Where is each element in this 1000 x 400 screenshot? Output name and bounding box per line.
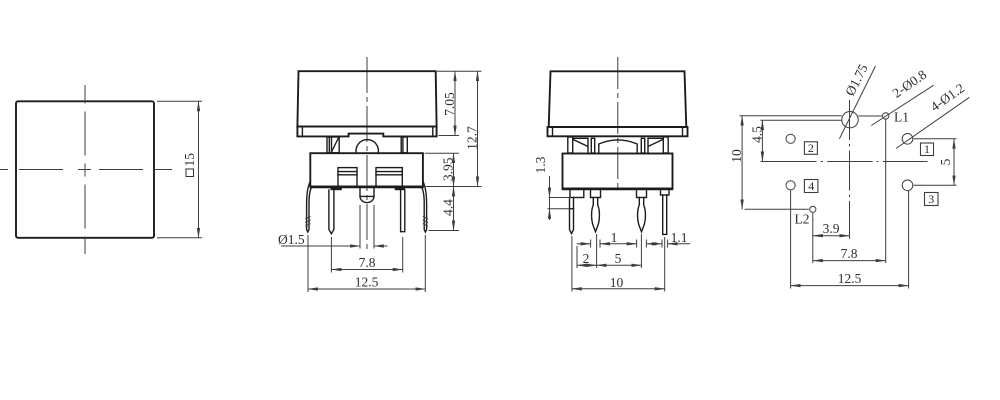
svg-text:12.7: 12.7: [464, 126, 479, 150]
svg-text:12.5: 12.5: [838, 271, 862, 286]
svg-text:15: 15: [182, 153, 197, 167]
svg-text:5: 5: [938, 158, 953, 165]
svg-text:10: 10: [729, 149, 744, 163]
svg-text:Ø1.75: Ø1.75: [842, 61, 871, 98]
svg-text:4.5: 4.5: [749, 126, 764, 143]
svg-text:7.8: 7.8: [841, 246, 858, 261]
svg-text:1.3: 1.3: [533, 156, 548, 173]
svg-text:2: 2: [583, 251, 590, 266]
svg-text:7.8: 7.8: [359, 255, 376, 270]
svg-text:1.1: 1.1: [671, 230, 688, 245]
svg-text:3.95: 3.95: [440, 157, 455, 181]
svg-text:3: 3: [928, 192, 934, 206]
svg-text:10: 10: [610, 275, 624, 290]
svg-text:12.5: 12.5: [355, 275, 379, 290]
svg-text:7.05: 7.05: [442, 92, 457, 116]
svg-text:Ø1.5: Ø1.5: [278, 232, 305, 247]
svg-text:4.4: 4.4: [440, 199, 455, 216]
svg-text:L2: L2: [795, 212, 810, 227]
svg-text:4: 4: [808, 179, 814, 193]
svg-text:3.9: 3.9: [823, 221, 840, 236]
svg-text:2: 2: [808, 141, 814, 155]
svg-text:2-Ø0.8: 2-Ø0.8: [890, 67, 930, 101]
svg-text:5: 5: [615, 251, 622, 266]
svg-text:1: 1: [924, 142, 930, 156]
svg-text:L1: L1: [894, 110, 909, 125]
svg-text:1: 1: [611, 230, 618, 245]
